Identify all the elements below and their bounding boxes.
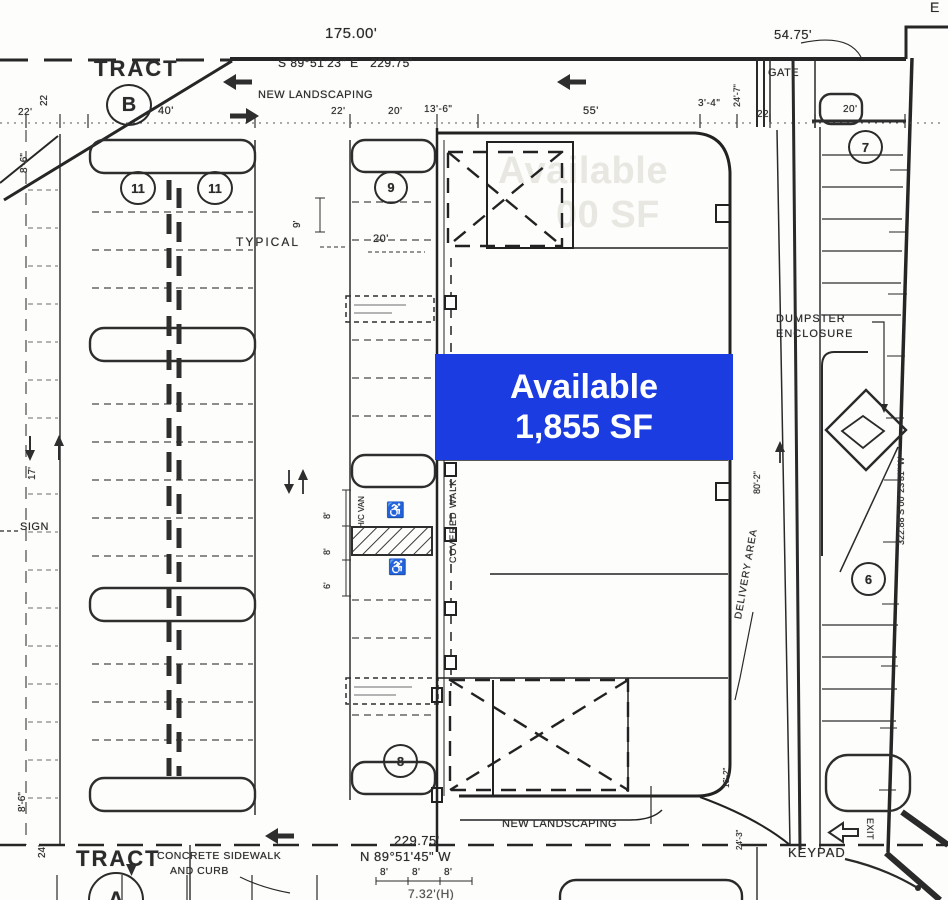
dim-22-left: 22' [18, 108, 33, 118]
building-outline [432, 128, 790, 852]
dim-8-s3: 8' [444, 868, 452, 878]
hc-van-label: H/C VAN [358, 496, 366, 528]
roof-structure-square [487, 142, 573, 248]
left-arrow-icon [265, 828, 294, 844]
dim-8-b: 8' [323, 548, 332, 555]
dim-3-4: 3'-4" [698, 99, 720, 109]
dim-22-right: 22 [757, 110, 769, 120]
gate-label: GATE [768, 68, 799, 79]
dumpster-enclosure [822, 322, 906, 572]
bearing-bottom: N 89°51'45" W [360, 850, 451, 863]
dim-80-2: 80'-2" [753, 471, 762, 494]
hatched-loading-stripe [352, 527, 432, 555]
new-landscaping-top: NEW LANDSCAPING [258, 90, 373, 101]
dim-6: 6' [323, 582, 332, 589]
dim-20-mid: 20' [388, 107, 403, 117]
dim-south-length: 229.75' [394, 834, 440, 847]
availability-badge-title: Available [510, 370, 658, 404]
dim-24-bottom: 24' [38, 845, 48, 858]
exit-label: EXIT [865, 818, 874, 840]
down-up-arrow-pair [25, 435, 64, 461]
typical-label: TYPICAL [236, 236, 300, 248]
stall-tag-9: 9 [374, 171, 408, 204]
delivery-strip [735, 60, 800, 850]
sign-label: SIGN [20, 522, 49, 533]
dim-9: 9' [293, 221, 303, 228]
new-landscaping-bottom: NEW LANDSCAPING [502, 819, 617, 830]
handicap-icon: ♿ [388, 560, 407, 575]
keypad-label: KEYPAD [788, 846, 846, 859]
bearing-east: 322.88 S 00°23'31" W [897, 457, 906, 545]
handicap-icon: ♿ [386, 503, 405, 518]
dim-8-s1: 8' [380, 868, 388, 878]
dim-55: 55' [583, 106, 599, 117]
dim-top-length: 175.00' [325, 26, 377, 41]
dim-22-left-vert: 22 [40, 95, 50, 106]
stall-tag-6: 6 [851, 562, 886, 596]
concrete-label-1: CONCRETE SIDEWALK [157, 851, 281, 862]
down-up-arrow-pair [284, 469, 308, 494]
dim-8-s2: 8' [412, 868, 420, 878]
stall-tag-11a: 11 [120, 171, 156, 205]
left-arrow-icon [223, 74, 252, 90]
stall-tag-7: 7 [848, 130, 883, 164]
tract-north-label: TRACT [94, 58, 179, 80]
dumpster-label-2: ENCLOSURE [776, 329, 853, 340]
ne-corner-note: E [930, 0, 940, 14]
dim-16-2: 16'-2" [723, 768, 731, 788]
dim-13-6: 13'-6" [424, 105, 452, 115]
dim-ne-length: 54.75' [774, 28, 812, 41]
illegible-note-box [346, 678, 438, 704]
tract-south-label: TRACT [76, 848, 161, 870]
illegible-note-box [346, 296, 434, 322]
availability-badge: Available 1,855 SF [435, 354, 733, 460]
dim-8-6-bottom: 8'-6" [18, 792, 28, 812]
dim-22-mid: 22' [331, 107, 346, 117]
availability-badge-size: 1,855 SF [515, 410, 653, 444]
concrete-label-2: AND CURB [170, 866, 229, 877]
height-note: 7.32'(H) [408, 888, 454, 900]
dim-40: 40' [158, 106, 174, 117]
dim-17: 17' [28, 467, 38, 480]
dumpster-label-1: DUMPSTER [776, 314, 846, 325]
site-plan: Available 00 SF [0, 0, 948, 900]
dim-8-a: 8' [323, 512, 332, 519]
dashed-x-area-bottom [450, 680, 628, 790]
stall-tag-11b: 11 [197, 171, 233, 205]
tract-north-id: B [106, 84, 152, 126]
dim-20-typical: 20' [373, 234, 389, 245]
dim-24-7: 24'-7" [733, 84, 742, 107]
covered-walk-label: COVERED WALK [449, 479, 458, 563]
exit-arrow-icon [829, 823, 858, 842]
dim-20-right: 20' [843, 105, 858, 115]
dim-24-3: 24'-3" [736, 830, 744, 850]
dim-8-6-top: 8'-6" [20, 153, 30, 173]
bearing-top: S 89°51'23" E 229.75' [278, 57, 413, 69]
dashed-x-area-top [448, 152, 562, 246]
dumpster-pad [826, 390, 906, 470]
left-arrow-icon [557, 74, 586, 90]
stall-tag-8: 8 [383, 744, 418, 778]
